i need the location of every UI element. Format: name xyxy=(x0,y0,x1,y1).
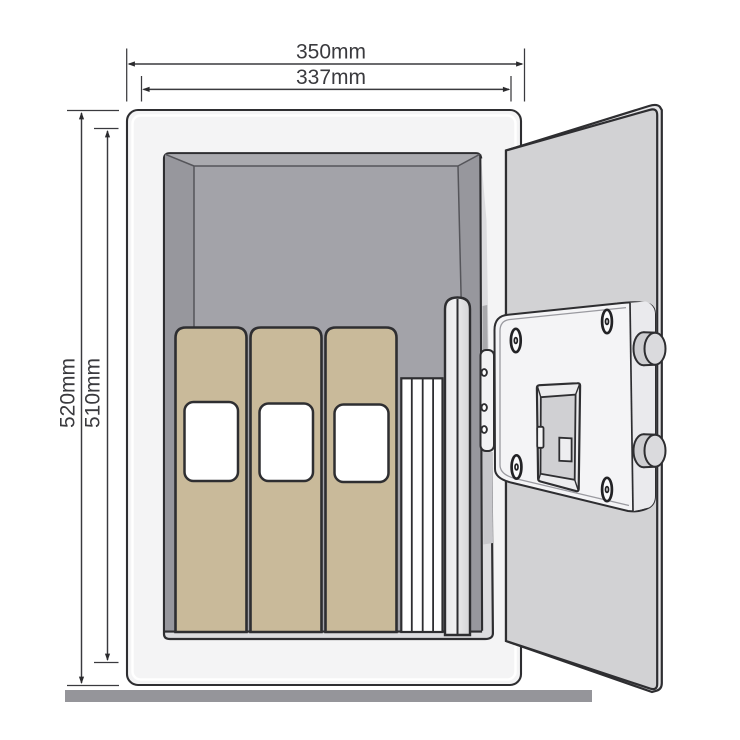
svg-text:337mm: 337mm xyxy=(296,66,366,89)
svg-text:520mm: 520mm xyxy=(57,358,80,428)
svg-text:350mm: 350mm xyxy=(296,41,366,64)
svg-text:510mm: 510mm xyxy=(82,358,105,428)
